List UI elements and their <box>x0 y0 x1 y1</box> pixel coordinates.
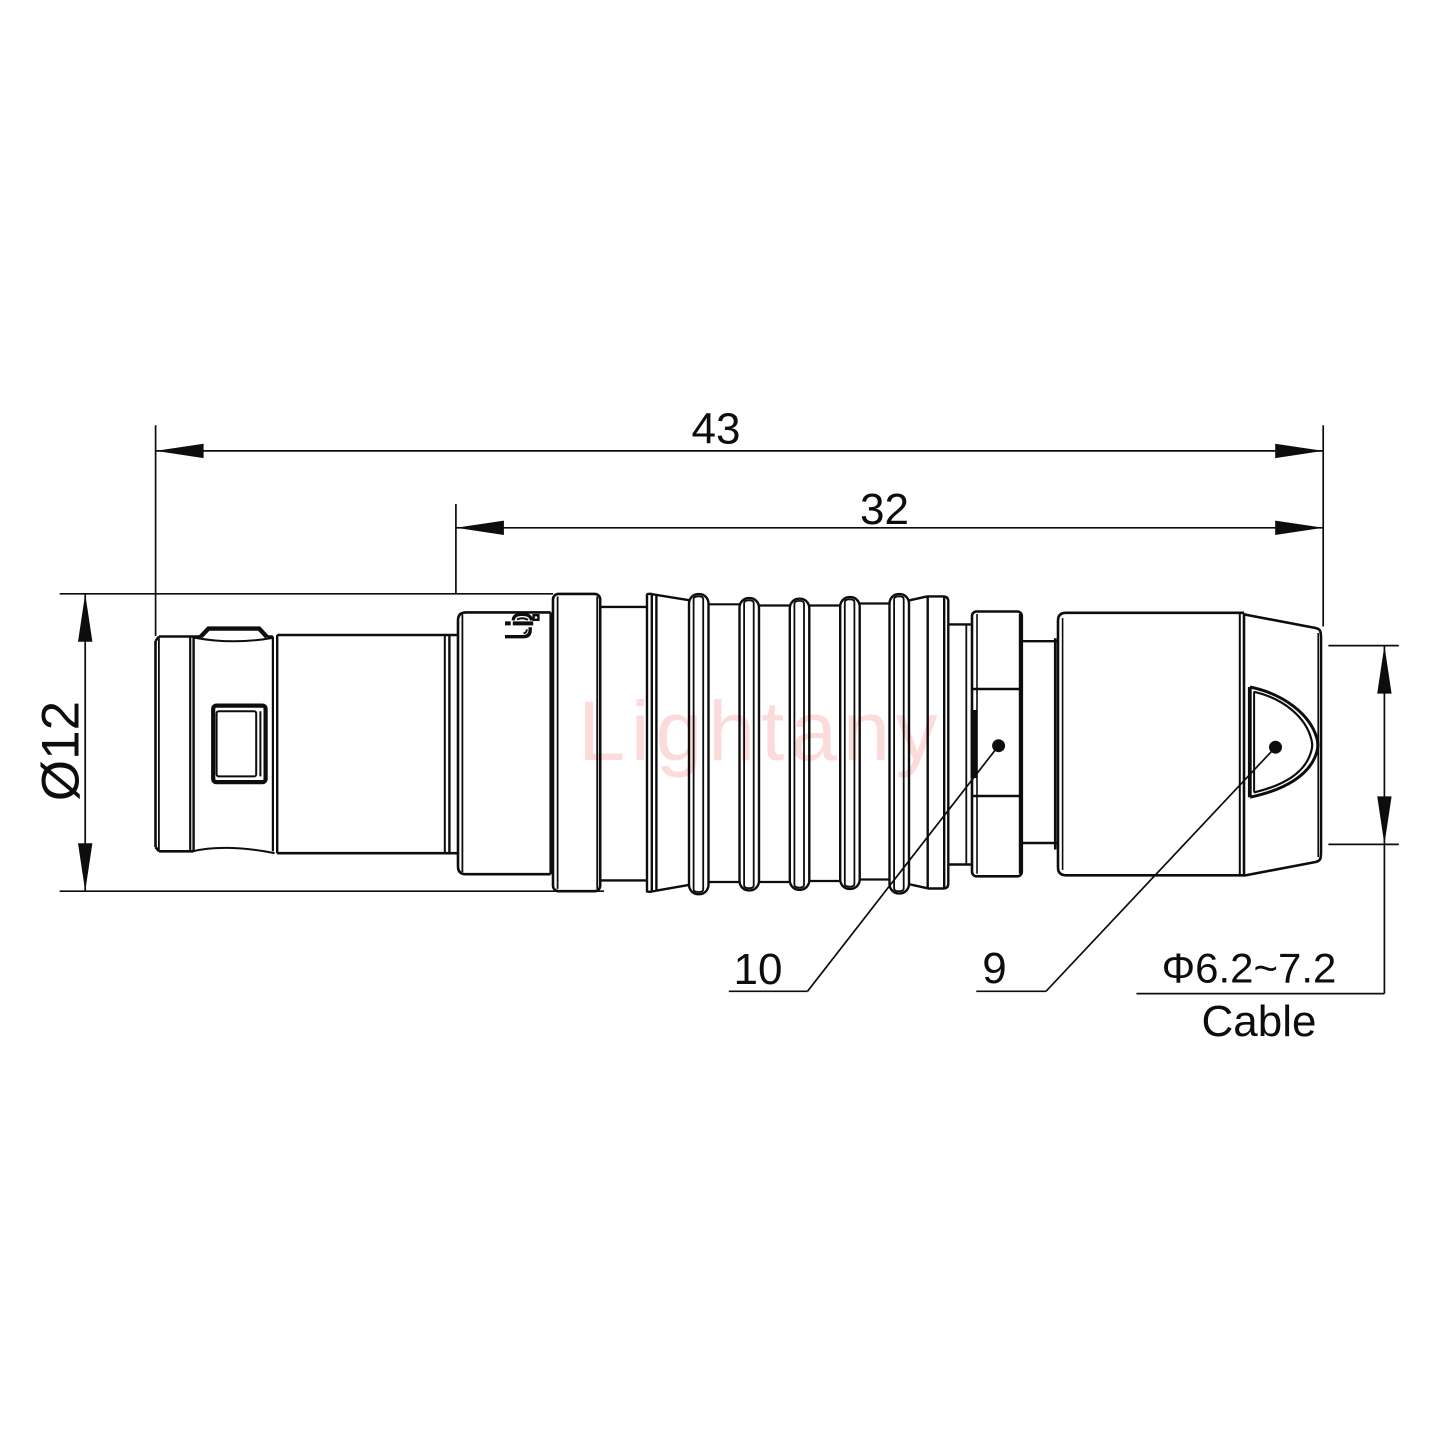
svg-text:32: 32 <box>860 485 909 534</box>
svg-text:Cable: Cable <box>1202 997 1317 1046</box>
svg-text:10: 10 <box>734 945 783 994</box>
svg-text:Ø12: Ø12 <box>32 701 91 801</box>
svg-text:Φ6.2~7.2: Φ6.2~7.2 <box>1162 945 1337 992</box>
svg-text:43: 43 <box>692 405 741 454</box>
svg-text:9: 9 <box>982 944 1006 993</box>
